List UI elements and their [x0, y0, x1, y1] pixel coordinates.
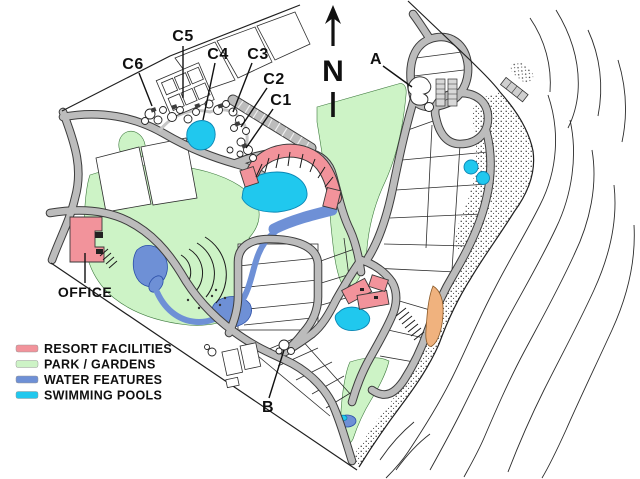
legend-swatch-swimming-pools	[16, 392, 38, 399]
marker-label-b: B	[262, 399, 274, 416]
resort-map: N C6 C5 C4 C3 C2 C1 A B OFFICE RESORT FA…	[0, 0, 640, 479]
legend-label-park-gardens: PARK / GARDENS	[44, 358, 156, 372]
marker-label-a: A	[370, 51, 382, 68]
legend-label-resort-facilities: RESORT FACILITIES	[44, 342, 172, 356]
legend-item-swimming-pools: SWIMMING POOLS	[16, 389, 162, 403]
legend-swatch-water-features	[16, 376, 38, 383]
marker-label-c6: C6	[122, 56, 143, 73]
resort-map-page: N C6 C5 C4 C3 C2 C1 A B OFFICE RESORT FA…	[0, 0, 640, 479]
north-label: N	[322, 55, 344, 88]
legend-item-park-gardens: PARK / GARDENS	[16, 358, 156, 372]
tennis-courts-south	[220, 343, 264, 388]
marker-label-c4: C4	[207, 46, 228, 63]
legend-item-resort-facilities: RESORT FACILITIES	[16, 342, 172, 356]
marker-label-c5: C5	[172, 28, 193, 45]
legend-swatch-resort-facilities	[16, 345, 38, 352]
legend-label-water-features: WATER FEATURES	[44, 373, 162, 387]
legend-label-swimming-pools: SWIMMING POOLS	[44, 389, 162, 403]
marker-label-c1: C1	[270, 92, 291, 109]
marker-label-c3: C3	[247, 46, 268, 63]
legend-swatch-park-gardens	[16, 361, 38, 368]
legend: RESORT FACILITIES PARK / GARDENS WATER F…	[16, 342, 172, 403]
marker-label-office: OFFICE	[58, 284, 112, 300]
legend-item-water-features: WATER FEATURES	[16, 373, 162, 387]
marker-label-c2: C2	[263, 71, 284, 88]
